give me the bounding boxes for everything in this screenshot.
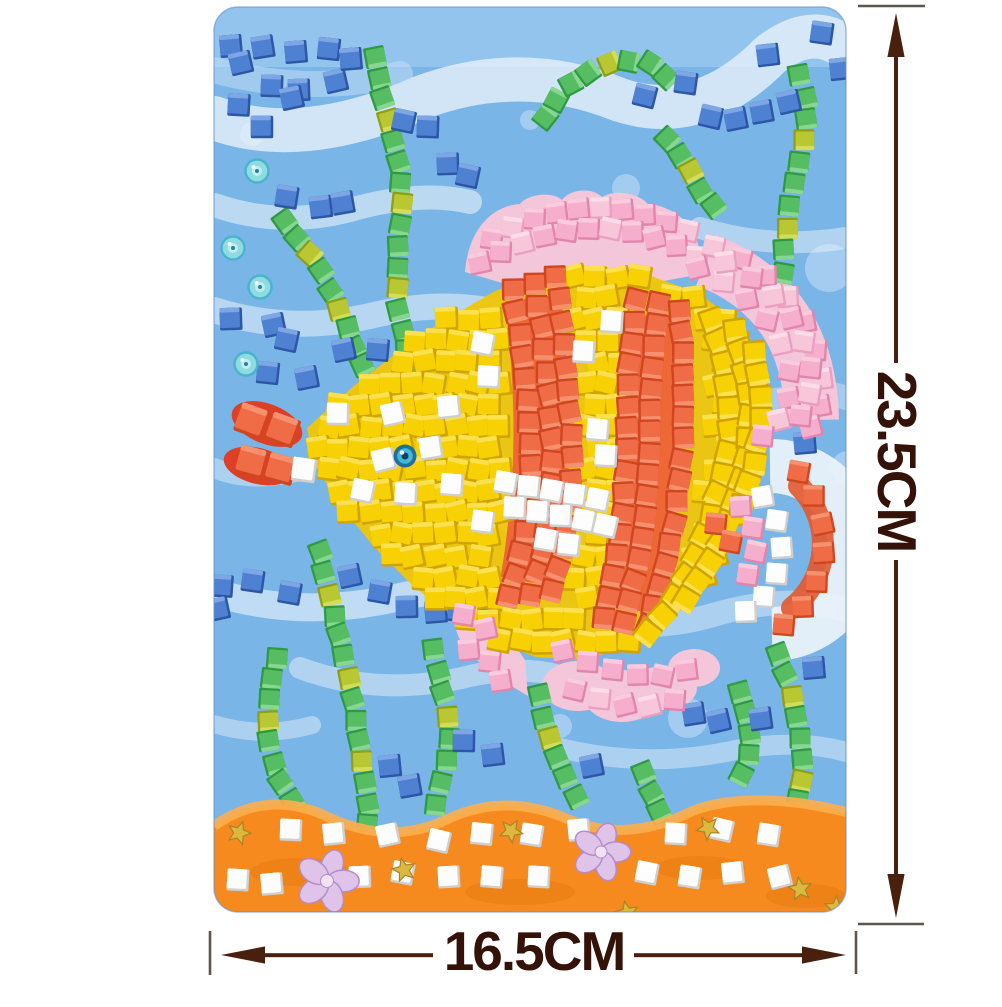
- svg-text:23.5CM: 23.5CM: [866, 371, 928, 552]
- svg-text:16.5CM: 16.5CM: [444, 920, 625, 982]
